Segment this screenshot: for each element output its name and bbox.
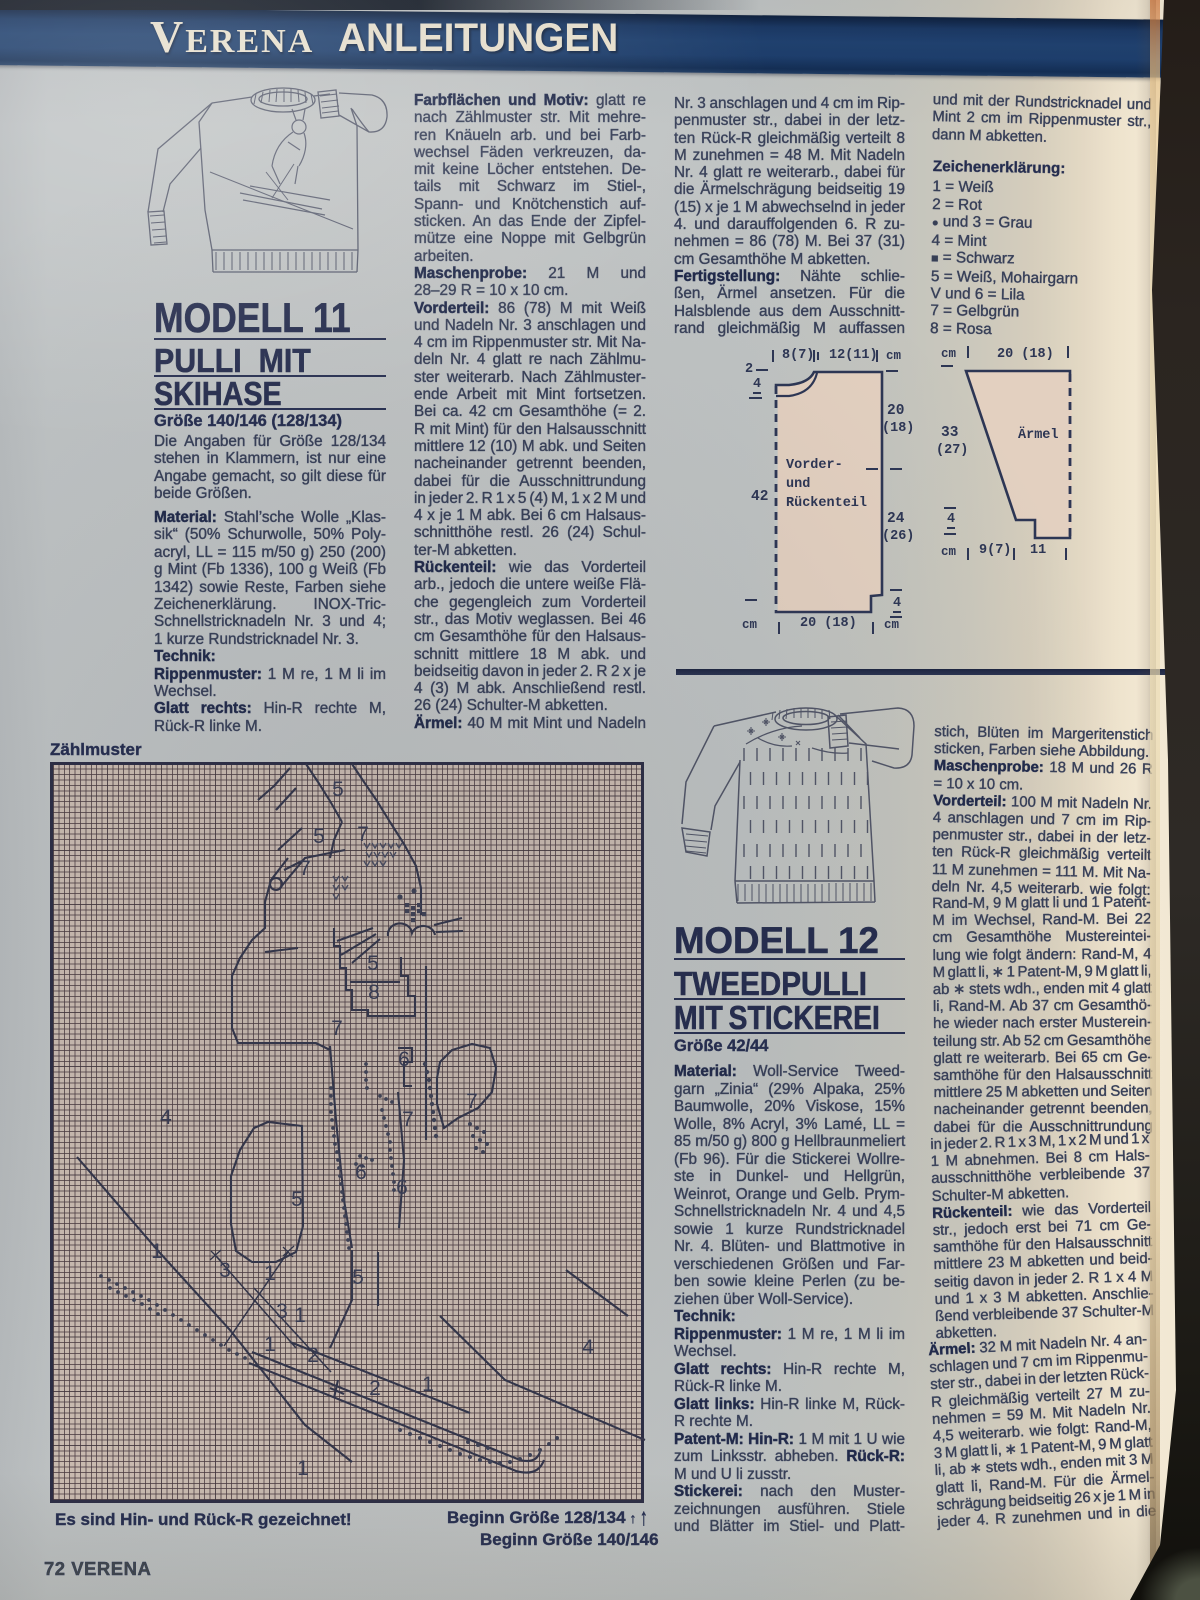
svg-text:5: 5 bbox=[313, 825, 325, 848]
svg-text:2: 2 bbox=[307, 1344, 319, 1367]
svg-text:5: 5 bbox=[352, 1266, 364, 1289]
svg-text:5: 5 bbox=[332, 778, 344, 801]
svg-text:1: 1 bbox=[294, 1304, 306, 1327]
svg-text:1: 1 bbox=[264, 1262, 276, 1285]
svg-text:4: 4 bbox=[582, 1336, 594, 1359]
svg-text:6: 6 bbox=[396, 1176, 408, 1199]
svg-text:7: 7 bbox=[299, 857, 311, 880]
svg-text:3: 3 bbox=[219, 1259, 231, 1282]
svg-text:7: 7 bbox=[466, 1090, 478, 1113]
svg-text:5: 5 bbox=[291, 1188, 303, 1211]
svg-text:6: 6 bbox=[398, 1048, 410, 1071]
svg-text:7: 7 bbox=[331, 1017, 343, 1040]
svg-text:6: 6 bbox=[355, 1161, 367, 1184]
svg-text:7: 7 bbox=[402, 1108, 414, 1131]
svg-text:8: 8 bbox=[368, 981, 380, 1004]
svg-text:7: 7 bbox=[357, 823, 369, 846]
svg-text:1: 1 bbox=[151, 1240, 163, 1263]
svg-text:1: 1 bbox=[422, 1373, 434, 1396]
svg-text:1: 1 bbox=[297, 1457, 309, 1480]
svg-text:5: 5 bbox=[367, 952, 379, 975]
svg-text:2: 2 bbox=[369, 1377, 381, 1400]
svg-text:4: 4 bbox=[160, 1106, 172, 1129]
svg-text:1: 1 bbox=[264, 1333, 276, 1356]
svg-text:3: 3 bbox=[276, 1300, 288, 1323]
